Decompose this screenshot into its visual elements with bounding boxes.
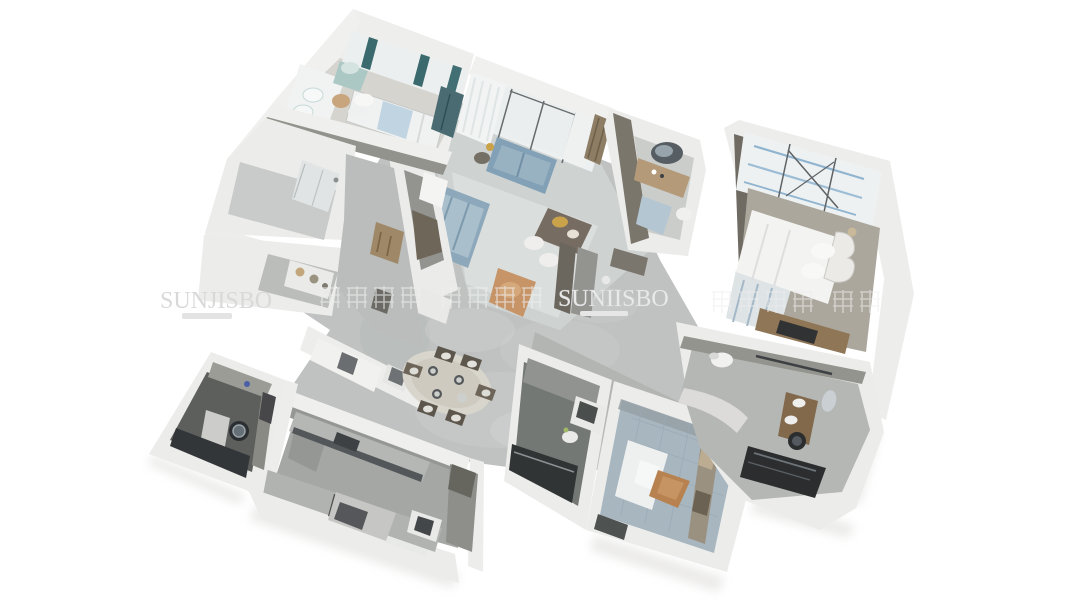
svg-text:SUNIISBO: SUNIISBO	[558, 286, 669, 312]
svg-text:SUNJISBO: SUNJISBO	[160, 288, 272, 314]
